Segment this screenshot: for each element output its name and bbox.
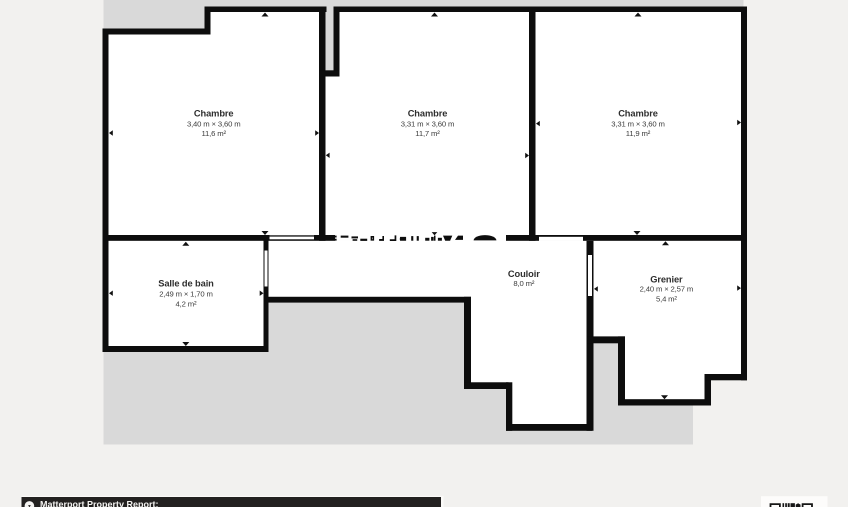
svg-text:11,7 m²: 11,7 m² xyxy=(415,129,440,138)
svg-text:11,9 m²: 11,9 m² xyxy=(626,129,651,138)
svg-text:Chambre: Chambre xyxy=(194,108,234,118)
svg-text:2,49 m × 1,70 m: 2,49 m × 1,70 m xyxy=(159,290,213,299)
svg-text:Chambre: Chambre xyxy=(618,108,658,118)
svg-text:11,6 m²: 11,6 m² xyxy=(201,129,226,138)
svg-text:3,31 m × 3,60 m: 3,31 m × 3,60 m xyxy=(611,119,665,128)
svg-text:Chambre: Chambre xyxy=(408,108,448,118)
svg-text:8,0 m²: 8,0 m² xyxy=(513,279,534,288)
svg-text:3,40 m × 3,60 m: 3,40 m × 3,60 m xyxy=(187,119,241,128)
svg-text:Salle de bain: Salle de bain xyxy=(158,278,214,288)
svg-text:Grenier: Grenier xyxy=(650,274,683,284)
svg-text:5,4 m²: 5,4 m² xyxy=(656,295,677,304)
svg-text:4,2 m²: 4,2 m² xyxy=(176,300,197,309)
svg-text:2,40 m × 2,57 m: 2,40 m × 2,57 m xyxy=(640,284,694,293)
svg-text:Matterport Property Report:: Matterport Property Report: xyxy=(40,499,159,507)
svg-text:3,31 m × 3,60 m: 3,31 m × 3,60 m xyxy=(401,119,455,128)
svg-text:Couloir: Couloir xyxy=(508,269,540,279)
